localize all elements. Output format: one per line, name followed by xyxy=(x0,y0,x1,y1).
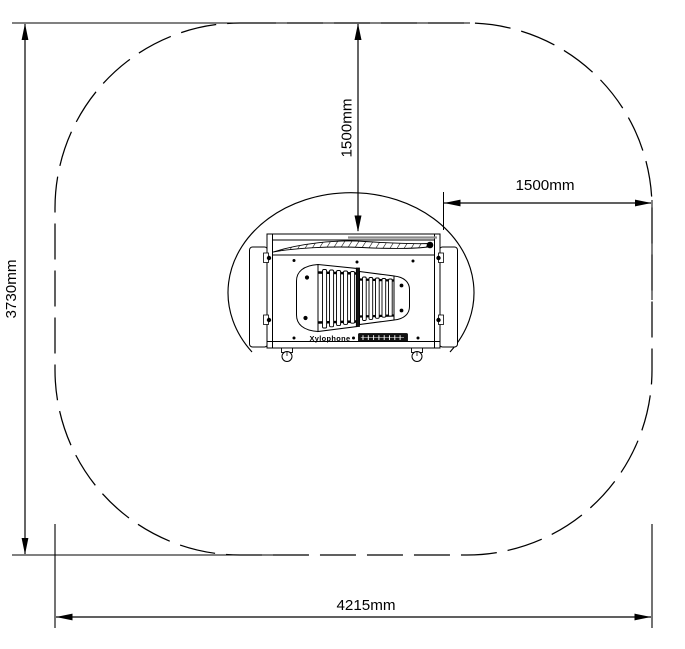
technical-drawing: 3730mm 4215mm 1500mm xyxy=(0,0,685,649)
left-post xyxy=(267,234,273,348)
drawing-page: 3730mm 4215mm 1500mm xyxy=(0,0,685,649)
bolt-icon xyxy=(400,284,404,288)
bolt-icon xyxy=(305,275,309,279)
screw-dot xyxy=(356,261,359,264)
dimension-label-total-height: 3730mm xyxy=(3,259,20,318)
dimension-clearance-top: 1500mm xyxy=(339,24,438,238)
bolt-icon xyxy=(303,316,307,320)
xylophone-bar xyxy=(369,278,373,320)
dimension-label-clearance-right: 1500mm xyxy=(515,177,574,194)
dimension-total-width: 4215mm xyxy=(55,524,652,628)
plate-divider xyxy=(356,268,359,327)
left-end-cap xyxy=(297,265,319,332)
rail-end-knob xyxy=(427,242,434,249)
equipment-name-label: Xylophone xyxy=(310,334,351,343)
arrowhead-right-icon xyxy=(635,614,652,621)
bolt-icon xyxy=(436,318,440,322)
bolt-icon xyxy=(400,309,404,313)
xylophone-bar xyxy=(376,278,380,318)
right-end-cap xyxy=(394,276,410,320)
dimension-clearance-right: 1500mm xyxy=(444,177,653,300)
arrowhead-up-icon xyxy=(22,24,29,41)
arrowhead-right-icon xyxy=(635,200,652,207)
arrowhead-left-icon xyxy=(444,200,461,207)
xylophone-bar xyxy=(389,279,393,316)
arrowhead-down-icon xyxy=(355,216,362,233)
arrowhead-left-icon xyxy=(56,614,73,621)
xylophone-bar xyxy=(382,279,386,318)
right-post xyxy=(435,234,441,348)
xylophone-bar xyxy=(344,271,348,324)
xylophone-bar xyxy=(323,270,327,329)
bolt-icon xyxy=(267,318,271,322)
screw-dot xyxy=(417,337,420,340)
dimension-label-total-width: 4215mm xyxy=(336,597,395,614)
screw-dot xyxy=(293,337,296,340)
xylophone-bar xyxy=(351,272,355,324)
xylophone-bar xyxy=(337,271,341,326)
xylophone-bar xyxy=(363,277,367,321)
bolt-icon xyxy=(267,256,271,260)
screw-dot xyxy=(352,337,355,340)
dimension-label-clearance-top: 1500mm xyxy=(339,98,356,157)
xylophone-bar xyxy=(330,270,334,327)
arrowhead-up-icon xyxy=(355,24,362,41)
bolt-icon xyxy=(436,256,440,260)
equipment-xylophone: Xylophone xyxy=(250,234,458,362)
screw-dot xyxy=(412,260,415,263)
arrowhead-down-icon xyxy=(22,538,29,555)
screw-dot xyxy=(293,259,296,262)
